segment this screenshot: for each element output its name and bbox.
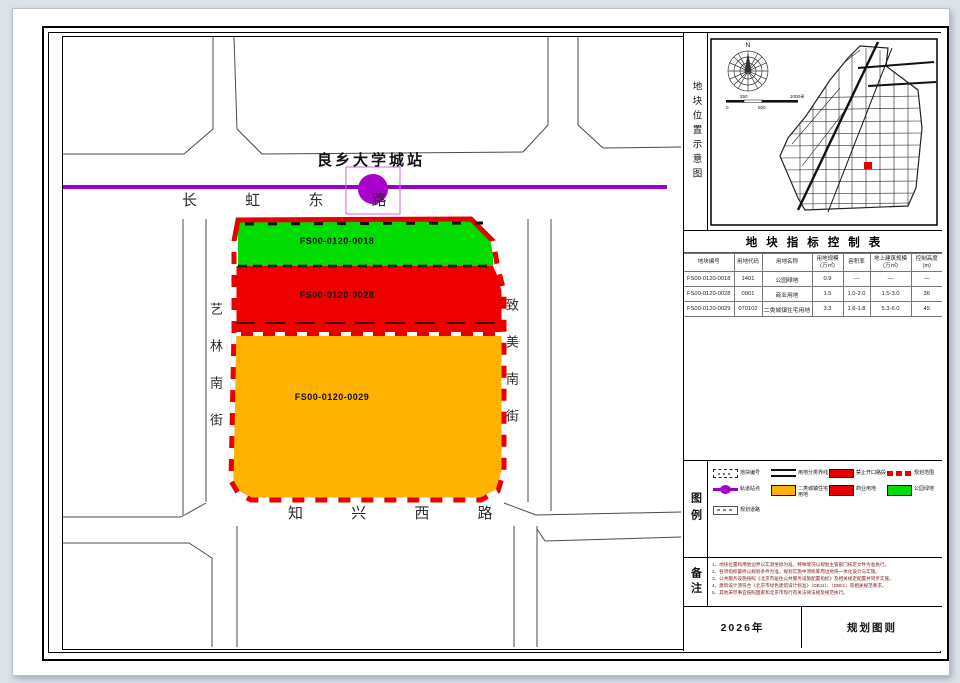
- planned-road-symbol: [713, 506, 738, 515]
- residential-symbol: [771, 485, 796, 496]
- city-inset-map[interactable]: N 0 250 500 1000米: [710, 38, 938, 226]
- note-line: 5、其他未尽事宜按照国家和北京市现行有关法律法规及规范执行。: [712, 590, 938, 597]
- main-map: [63, 37, 681, 647]
- legend-item-landuse-boundary: 用地分类界线: [771, 469, 829, 478]
- sidebar: 地块位置示意图 N 0 250 500: [683, 33, 942, 651]
- table-section: 地块指标控制表 地块编号用地代码 用地名称用地规模(万㎡) 容积率地上建筑规模(…: [684, 231, 942, 461]
- legend-item-no-access: 禁止开口路段: [829, 469, 887, 478]
- footer-year: 2026年: [684, 607, 802, 648]
- parcel-id-residential: FS00-0120-0029: [267, 392, 397, 402]
- no-access-symbol: [829, 469, 854, 478]
- location-section-strip: 地块位置示意图: [684, 33, 708, 230]
- road-label-north: 长 虹 东 路: [182, 189, 409, 210]
- parcel-id-commercial: FS00-0120-0028: [272, 290, 402, 300]
- legend-item-planned-road: 规划道路: [713, 506, 771, 515]
- road-label-south: 知 兴 西 路: [288, 502, 515, 523]
- planning-scope-symbol: [887, 471, 912, 476]
- parcel-number-symbol: [713, 469, 738, 478]
- table-row[interactable]: FS00-0120-0029070102 二类城镇住宅用地3.3 1.6-1.8…: [684, 302, 942, 317]
- note-line: 1、地块位置和用地边界以实测坐标为准，特殊情况以规划主管部门核定文件为准执行。: [712, 562, 938, 569]
- legend-section-strip: 图例: [684, 461, 708, 557]
- legend-item-residential: 二类城镇住宅用地: [771, 485, 829, 499]
- note-line: 4、建筑设计须符合《北京市绿色建筑设计标准》（DB11）、（DB01）等相关规范…: [712, 583, 938, 590]
- rail-station-symbol: [713, 485, 738, 494]
- svg-text:500: 500: [758, 105, 766, 110]
- landuse-boundary-symbol: [771, 469, 796, 477]
- legend-section-label: 图例: [688, 492, 704, 526]
- location-section: 地块位置示意图 N 0 250 500: [684, 33, 942, 231]
- footer-section: 2026年 规划图则: [684, 607, 942, 648]
- table-title: 地块指标控制表: [684, 231, 942, 253]
- svg-text:1000米: 1000米: [790, 93, 805, 100]
- svg-text:250: 250: [740, 94, 748, 99]
- legend-section: 图例 地块编号 用地分类界线 禁止开口路段 规划范围: [684, 461, 942, 558]
- table-row[interactable]: FS00-0120-00181401 公园绿地0.9 —— —: [684, 272, 942, 287]
- legend-item-commercial: 商业用地: [829, 485, 887, 499]
- street-label-west: 艺林南街: [206, 302, 225, 450]
- notes-text: 1、地块位置和用地边界以实测坐标为准，特殊情况以规划主管部门核定文件为准执行。 …: [707, 558, 942, 606]
- street-label-east: 致美南街: [502, 298, 521, 446]
- notes-section: 备注 1、地块位置和用地边界以实测坐标为准，特殊情况以规划主管部门核定文件为准执…: [684, 558, 942, 607]
- park-green-symbol: [887, 485, 912, 496]
- location-section-label: 地块位置示意图: [689, 81, 703, 183]
- parcel-residential[interactable]: [231, 334, 504, 500]
- legend-item-planning-scope: 规划范围: [887, 469, 945, 478]
- note-line: 3、公共服务设施按照《北京市居住公共服务设施配置指标》及相关规定配置并同步实施。: [712, 576, 938, 583]
- parcel-id-park: FS00-0120-0018: [272, 236, 402, 246]
- notes-section-label: 备注: [688, 567, 704, 597]
- note-line: 2、各项指标最终以规划条件为准，规划实施中须统筹周边地块一体化设计与实施。: [712, 569, 938, 576]
- compass-rose: [728, 51, 768, 91]
- commercial-symbol: [829, 485, 854, 496]
- indicator-table: 地块编号用地代码 用地名称用地规模(万㎡) 容积率地上建筑规模(万㎡) 控制高度…: [684, 253, 942, 317]
- table-row[interactable]: FS00-0120-00280901 商业用地1.5 1.0-2.01.5-3.…: [684, 287, 942, 302]
- legend-item-parcel-number: 地块编号: [713, 469, 771, 478]
- legend-item-park-green: 公园绿地: [887, 485, 945, 499]
- compass-north-label: N: [746, 42, 751, 49]
- footer-sheet-title: 规划图则: [802, 607, 942, 648]
- station-label: 良乡大学城站: [296, 149, 446, 170]
- notes-section-strip: 备注: [684, 558, 708, 606]
- parcel-commercial[interactable]: [234, 266, 504, 334]
- table-header-row: 地块编号用地代码 用地名称用地规模(万㎡) 容积率地上建筑规模(万㎡) 控制高度…: [684, 254, 942, 272]
- legend-item-rail-station: 轨道站点: [713, 485, 771, 499]
- site-marker[interactable]: [864, 162, 872, 169]
- legend-items: 地块编号 用地分类界线 禁止开口路段 规划范围 轨道站点: [707, 461, 942, 557]
